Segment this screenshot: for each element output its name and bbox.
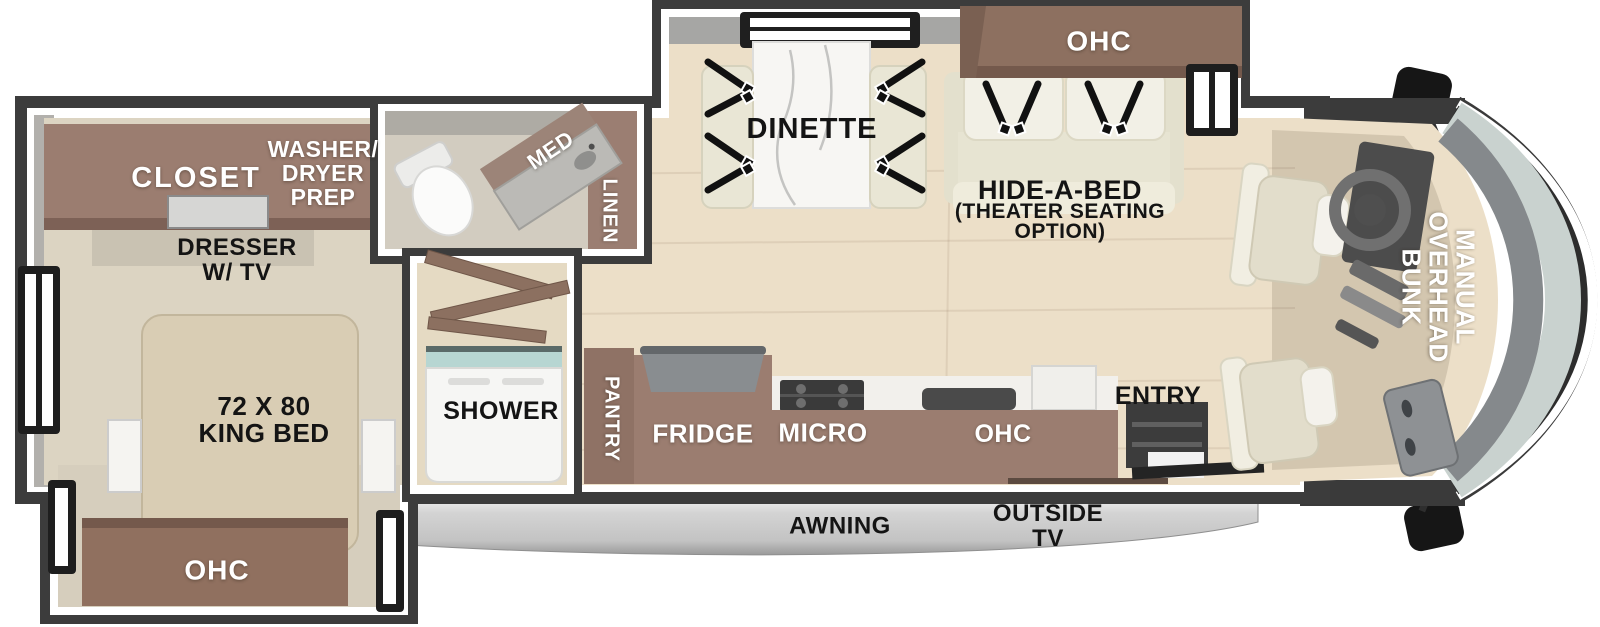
- nightstand-left: [108, 420, 141, 492]
- counter-shadow: [1008, 478, 1168, 484]
- floorplan-drawing: [0, 0, 1600, 627]
- nightstand-right: [362, 420, 395, 492]
- rv-floorplan: CLOSET WASHER/ DRYER PREP DRESSER W/ TV …: [0, 0, 1600, 627]
- awning-shape: [392, 498, 1258, 555]
- dresser-tv: [92, 230, 314, 266]
- counter-end: [1032, 366, 1096, 410]
- left-wall-window: [18, 266, 60, 434]
- pantry-cabinet: [584, 348, 634, 484]
- hide-a-bed-sofa: [944, 70, 1184, 214]
- bed-overhead-cabinet: [82, 518, 348, 606]
- bed-slide-left-window: [48, 480, 76, 574]
- sofa-slide-window: [1186, 64, 1238, 136]
- cooktop-icon: [780, 380, 864, 412]
- shower-pan: [426, 346, 562, 482]
- kitchen-counter-face: [772, 410, 1118, 484]
- bed-ohc-edge: [82, 518, 348, 528]
- fridge: [634, 346, 772, 484]
- bed-slide-right-window: [376, 510, 404, 612]
- kitchen-sink: [922, 388, 1016, 410]
- king-bed: [142, 315, 358, 552]
- dinette-table: [753, 42, 870, 208]
- closet-counter: [168, 196, 268, 228]
